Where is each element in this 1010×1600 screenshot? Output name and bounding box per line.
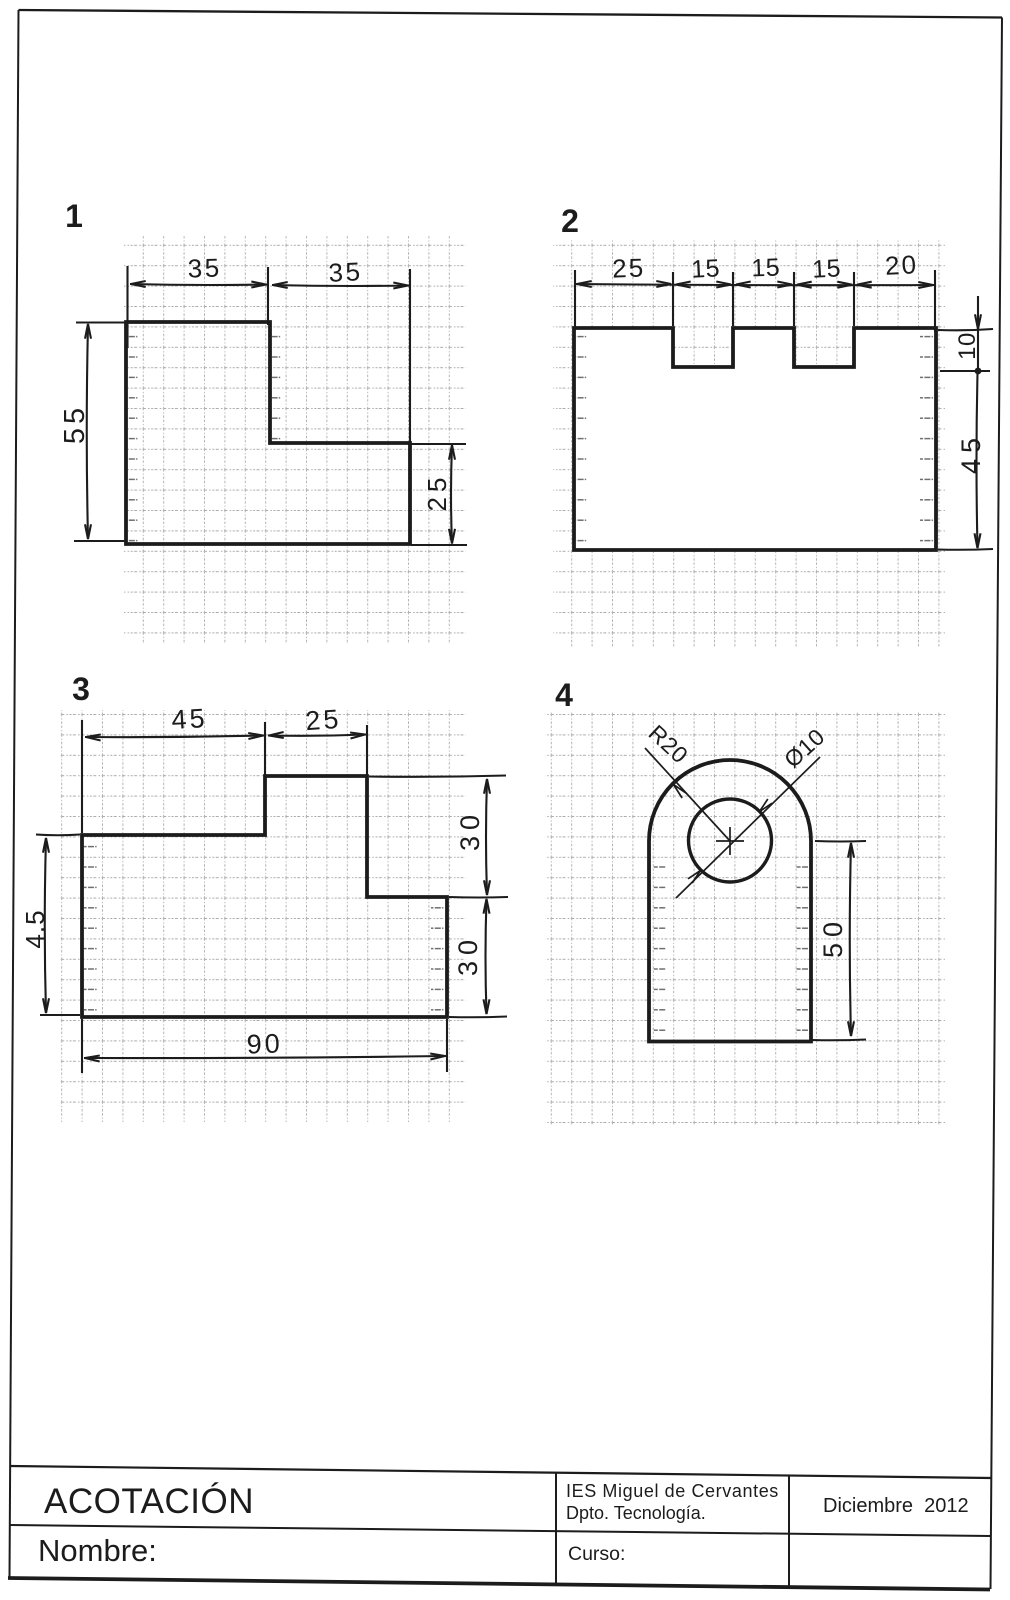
svg-text:90: 90 <box>246 1028 283 1059</box>
svg-text:45: 45 <box>171 703 209 735</box>
svg-text:15: 15 <box>811 254 841 283</box>
svg-text:IES Miguel de Cervantes: IES Miguel de Cervantes <box>566 1481 779 1501</box>
svg-text:4.5: 4.5 <box>20 909 50 948</box>
svg-text:50: 50 <box>818 916 848 958</box>
svg-text:35: 35 <box>328 256 363 288</box>
svg-text:30: 30 <box>455 809 485 851</box>
svg-text:15: 15 <box>690 254 720 283</box>
svg-text:10: 10 <box>954 332 981 360</box>
svg-text:Diciembre 2012: Diciembre 2012 <box>823 1495 969 1517</box>
svg-text:25: 25 <box>422 473 452 512</box>
svg-text:ACOTACIÓN: ACOTACIÓN <box>44 1482 254 1521</box>
svg-text:4: 4 <box>555 677 573 713</box>
svg-text:Nombre:: Nombre: <box>38 1533 157 1568</box>
svg-text:3: 3 <box>72 671 90 707</box>
svg-text:45: 45 <box>956 432 986 474</box>
svg-text:55: 55 <box>59 404 91 444</box>
svg-text:Curso:: Curso: <box>568 1543 625 1565</box>
svg-text:25: 25 <box>612 252 646 283</box>
svg-text:25: 25 <box>304 704 342 736</box>
svg-text:20: 20 <box>884 249 918 281</box>
svg-text:1: 1 <box>65 198 83 234</box>
svg-text:2: 2 <box>561 203 579 239</box>
svg-text:35: 35 <box>187 252 222 283</box>
svg-text:30: 30 <box>453 934 483 976</box>
svg-text:Dpto. Tecnología.: Dpto. Tecnología. <box>566 1503 706 1523</box>
svg-text:15: 15 <box>751 254 781 283</box>
